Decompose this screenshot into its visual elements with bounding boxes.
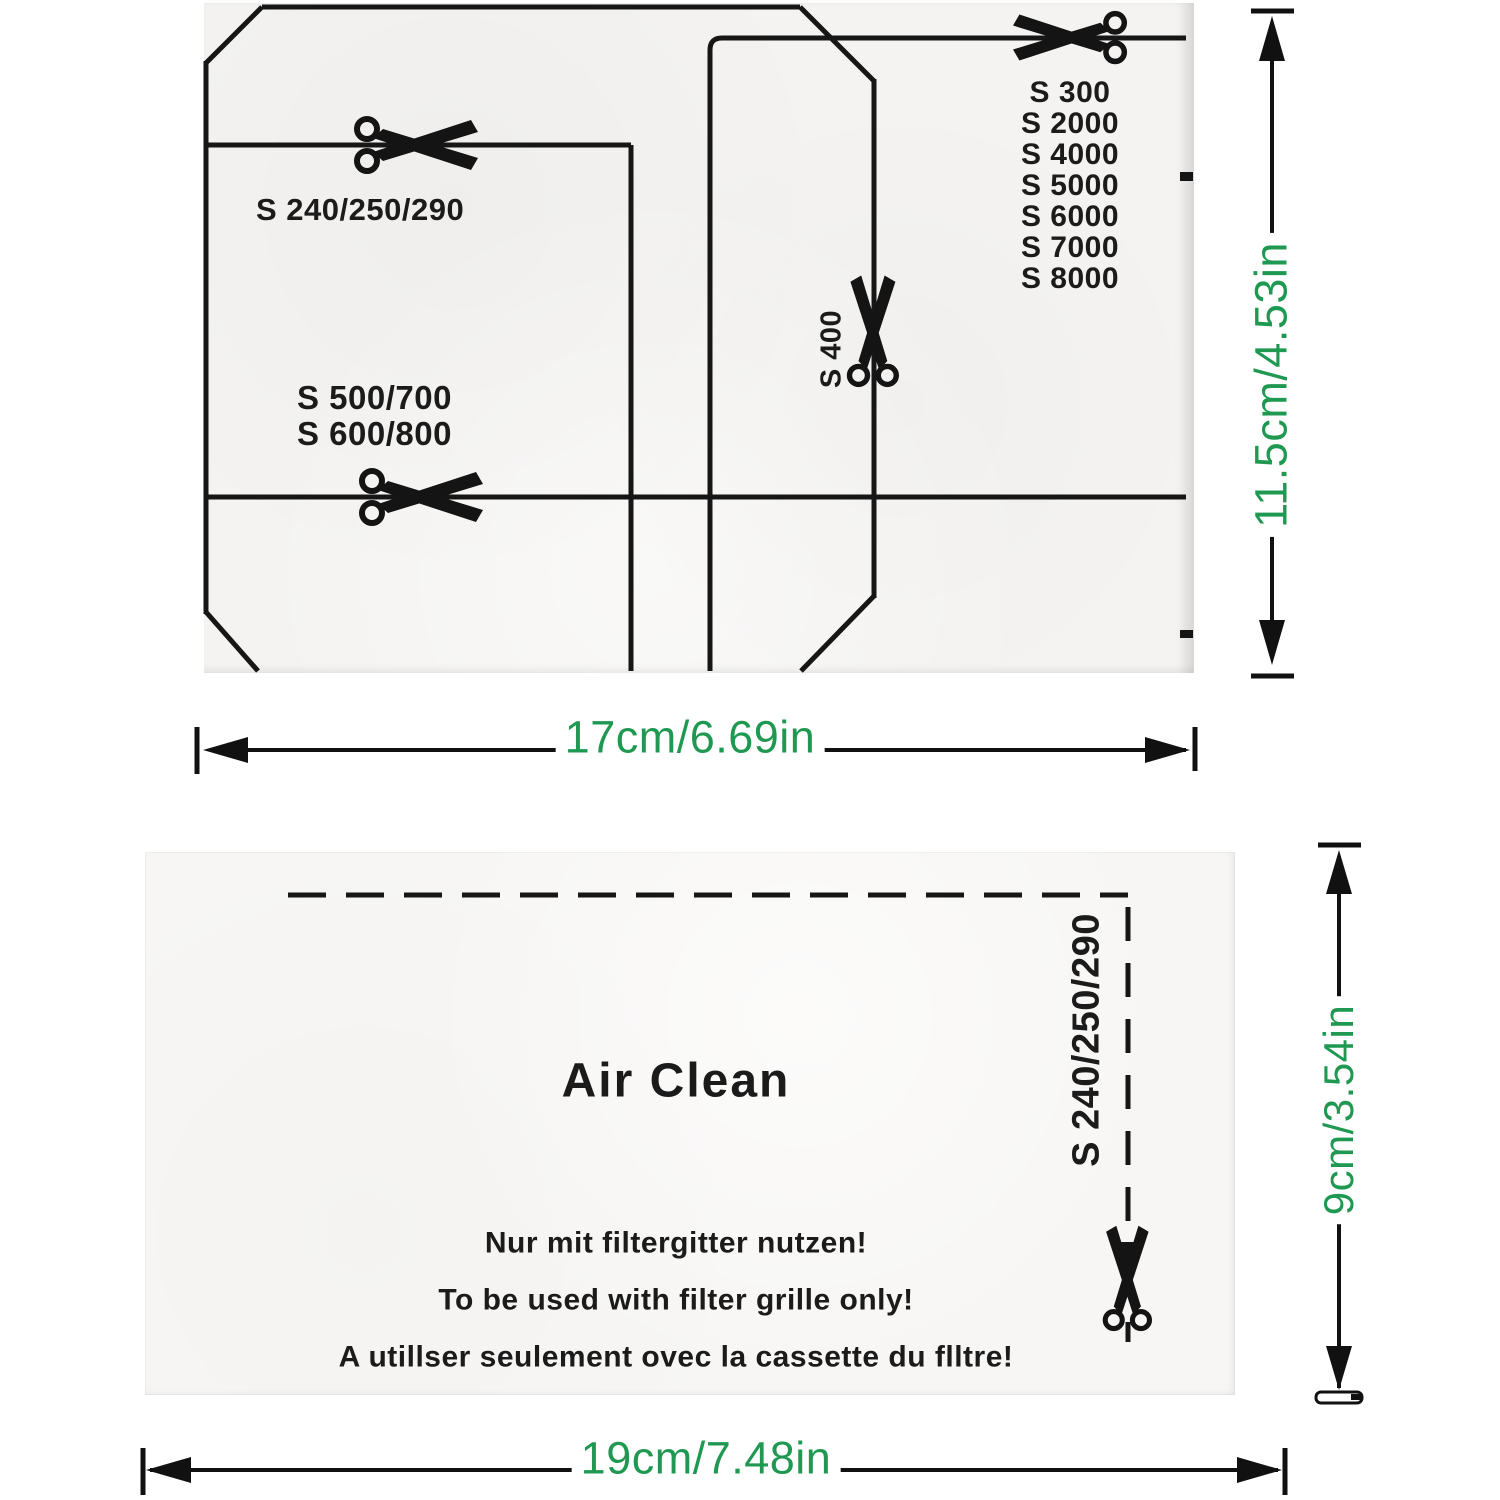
dimension-label-height-bottom: 9cm/3.54in [1316, 996, 1362, 1224]
usage-notice-line-fr: A utillser seulement ovec la cassette du… [171, 1329, 1181, 1386]
usage-notice-line-en: To be used with filter grille only! [171, 1272, 1181, 1329]
filter-title: Air Clean [562, 1054, 791, 1109]
dimension-label-width-bottom: 19cm/7.48in [572, 1433, 841, 1483]
dimension-label-height-top: 11.5cm/4.53in [1246, 233, 1296, 537]
usage-notice-line-de: Nur mit filtergitter nutzen! [171, 1215, 1181, 1272]
model-compat-label-vertical: S 240/250/290 [1066, 913, 1109, 1167]
edge-mark [1180, 630, 1193, 638]
dimension-label-width-top: 17cm/6.69in [556, 712, 825, 762]
model-compat-label-group: S 500/700 S 600/800 [297, 380, 452, 452]
model-list-item: S 6000 [1014, 201, 1126, 232]
model-list-item: S 7000 [1014, 232, 1126, 263]
model-compat-label: S 500/700 [297, 380, 452, 416]
model-compat-label-vertical: S 400 [816, 310, 849, 388]
model-list-item: S 8000 [1014, 263, 1126, 294]
product-dimension-image: S 240/250/290 S 500/700 S 600/800 S 400 … [0, 0, 1500, 1500]
model-compat-list: S 300 S 2000 S 4000 S 5000 S 6000 S 7000… [1014, 77, 1126, 294]
model-compat-label: S 240/250/290 [256, 192, 464, 228]
model-list-item: S 300 [1014, 77, 1126, 108]
usage-notice: Nur mit filtergitter nutzen! To be used … [171, 1215, 1181, 1386]
edge-mark [1180, 172, 1193, 181]
model-compat-label: S 600/800 [297, 416, 452, 452]
model-list-item: S 5000 [1014, 170, 1126, 201]
model-list-item: S 2000 [1014, 108, 1126, 139]
model-list-item: S 4000 [1014, 139, 1126, 170]
